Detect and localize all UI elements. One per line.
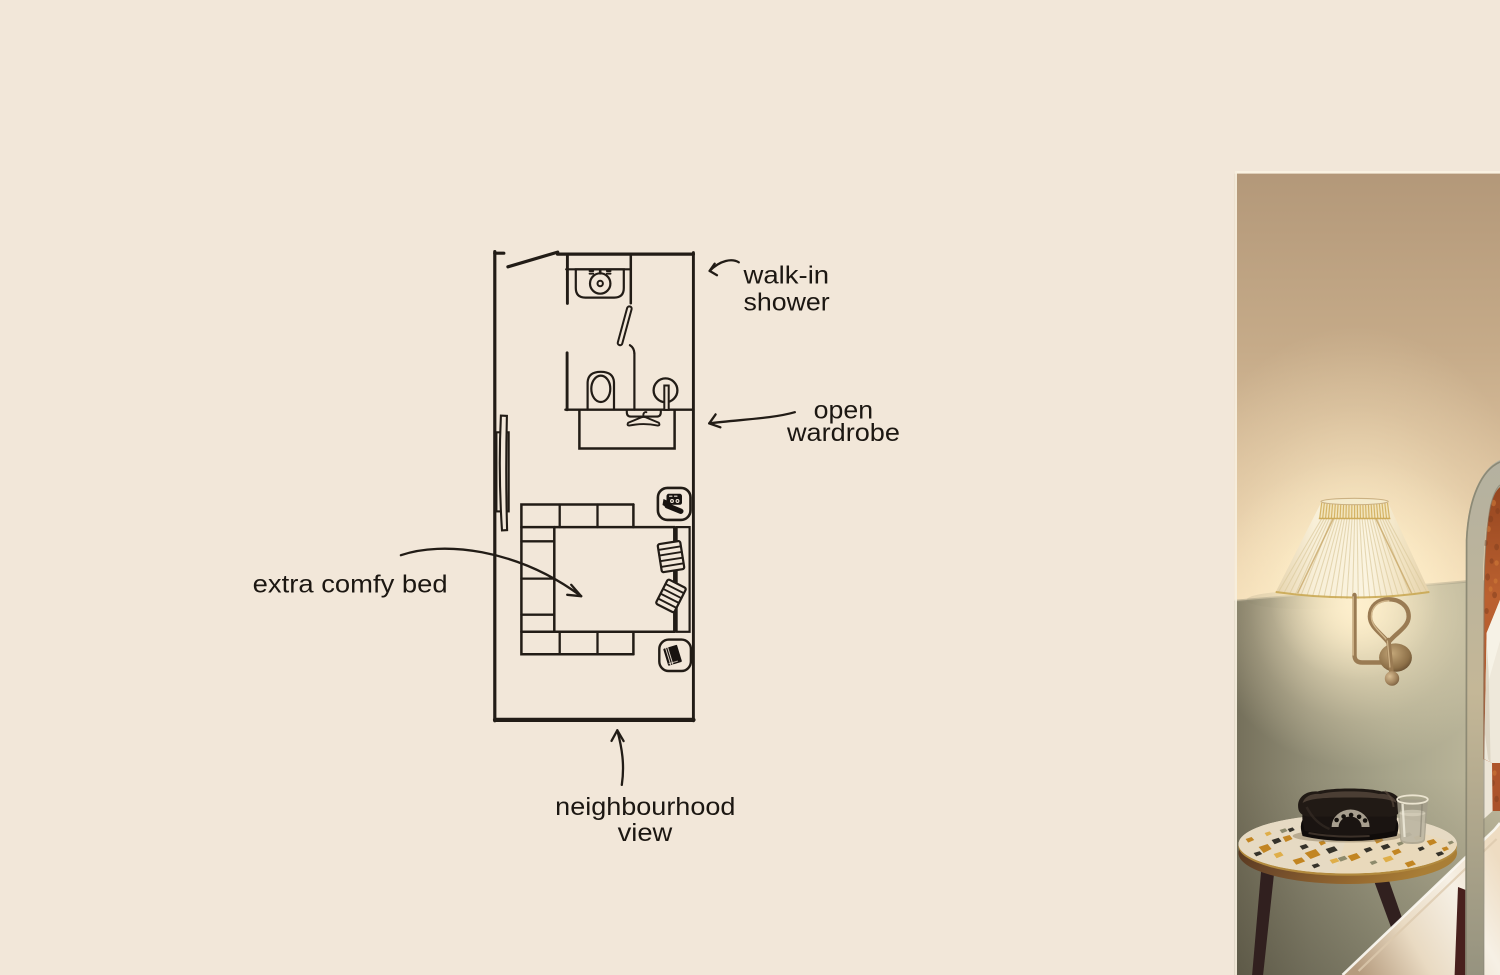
svg-text:walk-in: walk-in [742, 261, 829, 289]
svg-text:view: view [618, 819, 674, 847]
svg-text:neighbourhood: neighbourhood [555, 793, 735, 821]
svg-text:extra comfy bed: extra comfy bed [253, 570, 448, 598]
svg-text:shower: shower [744, 289, 830, 317]
svg-text:wardrobe: wardrobe [786, 419, 900, 447]
